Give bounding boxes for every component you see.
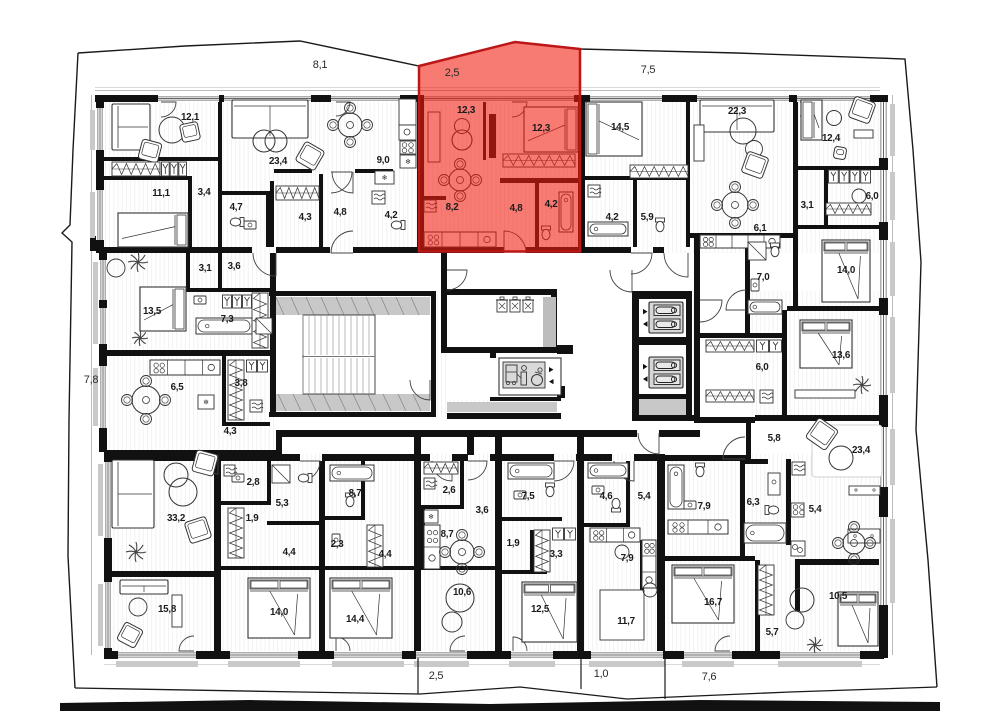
svg-text:12,5: 12,5 [531, 604, 550, 615]
svg-text:23,4: 23,4 [852, 445, 871, 456]
svg-text:❄: ❄ [382, 174, 388, 182]
svg-text:4,8: 4,8 [510, 203, 524, 214]
svg-text:4,4: 4,4 [283, 547, 297, 558]
svg-text:6,5: 6,5 [171, 382, 185, 393]
svg-text:5,4: 5,4 [809, 504, 823, 515]
svg-text:3,1: 3,1 [199, 263, 213, 274]
svg-text:10,6: 10,6 [453, 587, 472, 598]
svg-text:7,8: 7,8 [84, 374, 99, 386]
svg-text:7,6: 7,6 [702, 671, 717, 683]
svg-text:14,0: 14,0 [837, 265, 856, 276]
svg-text:7,5: 7,5 [641, 64, 656, 76]
svg-text:11,7: 11,7 [617, 616, 635, 627]
svg-text:4,2: 4,2 [545, 199, 559, 210]
svg-text:5,8: 5,8 [768, 433, 782, 444]
svg-text:5,9: 5,9 [641, 212, 655, 223]
svg-text:❄: ❄ [203, 399, 209, 407]
svg-text:3,6: 3,6 [228, 261, 242, 272]
svg-text:5,3: 5,3 [276, 498, 290, 509]
svg-text:10,5: 10,5 [829, 591, 848, 602]
svg-text:7,5: 7,5 [522, 491, 536, 502]
svg-text:8,1: 8,1 [313, 59, 328, 71]
svg-text:6,0: 6,0 [866, 191, 880, 202]
svg-text:4,3: 4,3 [224, 426, 238, 437]
svg-text:5,7: 5,7 [766, 627, 780, 638]
svg-text:3,4: 3,4 [198, 187, 212, 198]
svg-text:14,5: 14,5 [611, 122, 630, 133]
svg-text:12,3: 12,3 [532, 123, 551, 134]
svg-text:4,4: 4,4 [379, 549, 393, 560]
svg-text:7,9: 7,9 [621, 553, 635, 564]
svg-text:12,4: 12,4 [822, 133, 841, 144]
svg-text:22,3: 22,3 [728, 106, 747, 117]
svg-text:3,6: 3,6 [476, 505, 490, 516]
svg-text:❄: ❄ [428, 513, 434, 521]
svg-text:12,3: 12,3 [457, 105, 476, 116]
svg-text:4,2: 4,2 [606, 212, 620, 223]
svg-text:15,8: 15,8 [158, 604, 177, 615]
svg-text:1,9: 1,9 [246, 513, 260, 524]
svg-text:2,5: 2,5 [429, 670, 444, 682]
svg-text:12,1: 12,1 [181, 112, 200, 123]
svg-text:13,5: 13,5 [143, 306, 162, 317]
svg-text:4,6: 4,6 [600, 491, 614, 502]
svg-text:13,6: 13,6 [832, 350, 851, 361]
svg-text:3,3: 3,3 [550, 549, 564, 560]
svg-text:23,4: 23,4 [269, 156, 288, 167]
svg-text:4,3: 4,3 [299, 212, 313, 223]
svg-text:2,8: 2,8 [247, 477, 261, 488]
svg-text:8,7: 8,7 [349, 488, 363, 499]
svg-text:7,3: 7,3 [221, 314, 235, 325]
svg-text:3,1: 3,1 [801, 200, 815, 211]
svg-text:7,0: 7,0 [757, 272, 771, 283]
svg-text:16,7: 16,7 [704, 597, 723, 608]
svg-text:11,1: 11,1 [152, 188, 170, 199]
svg-text:❄: ❄ [405, 158, 411, 166]
svg-text:2,3: 2,3 [331, 539, 345, 550]
svg-text:6,3: 6,3 [747, 497, 761, 508]
svg-text:2,6: 2,6 [443, 485, 457, 496]
svg-text:33,2: 33,2 [167, 513, 186, 524]
svg-text:1,0: 1,0 [594, 668, 609, 680]
svg-text:7,9: 7,9 [698, 501, 712, 512]
svg-text:6,1: 6,1 [754, 223, 768, 234]
svg-text:2,5: 2,5 [445, 67, 460, 79]
svg-text:9,0: 9,0 [377, 155, 391, 166]
svg-text:4,2: 4,2 [385, 210, 399, 221]
svg-text:6,0: 6,0 [756, 362, 770, 373]
svg-text:8,2: 8,2 [446, 202, 460, 213]
svg-text:8,7: 8,7 [441, 529, 455, 540]
svg-text:14,4: 14,4 [346, 614, 365, 625]
svg-text:3,8: 3,8 [235, 378, 249, 389]
svg-text:14,0: 14,0 [270, 607, 289, 618]
svg-text:4,8: 4,8 [334, 207, 348, 218]
svg-text:4,7: 4,7 [230, 202, 244, 213]
svg-text:5,4: 5,4 [638, 491, 652, 502]
svg-text:1,9: 1,9 [507, 538, 521, 549]
